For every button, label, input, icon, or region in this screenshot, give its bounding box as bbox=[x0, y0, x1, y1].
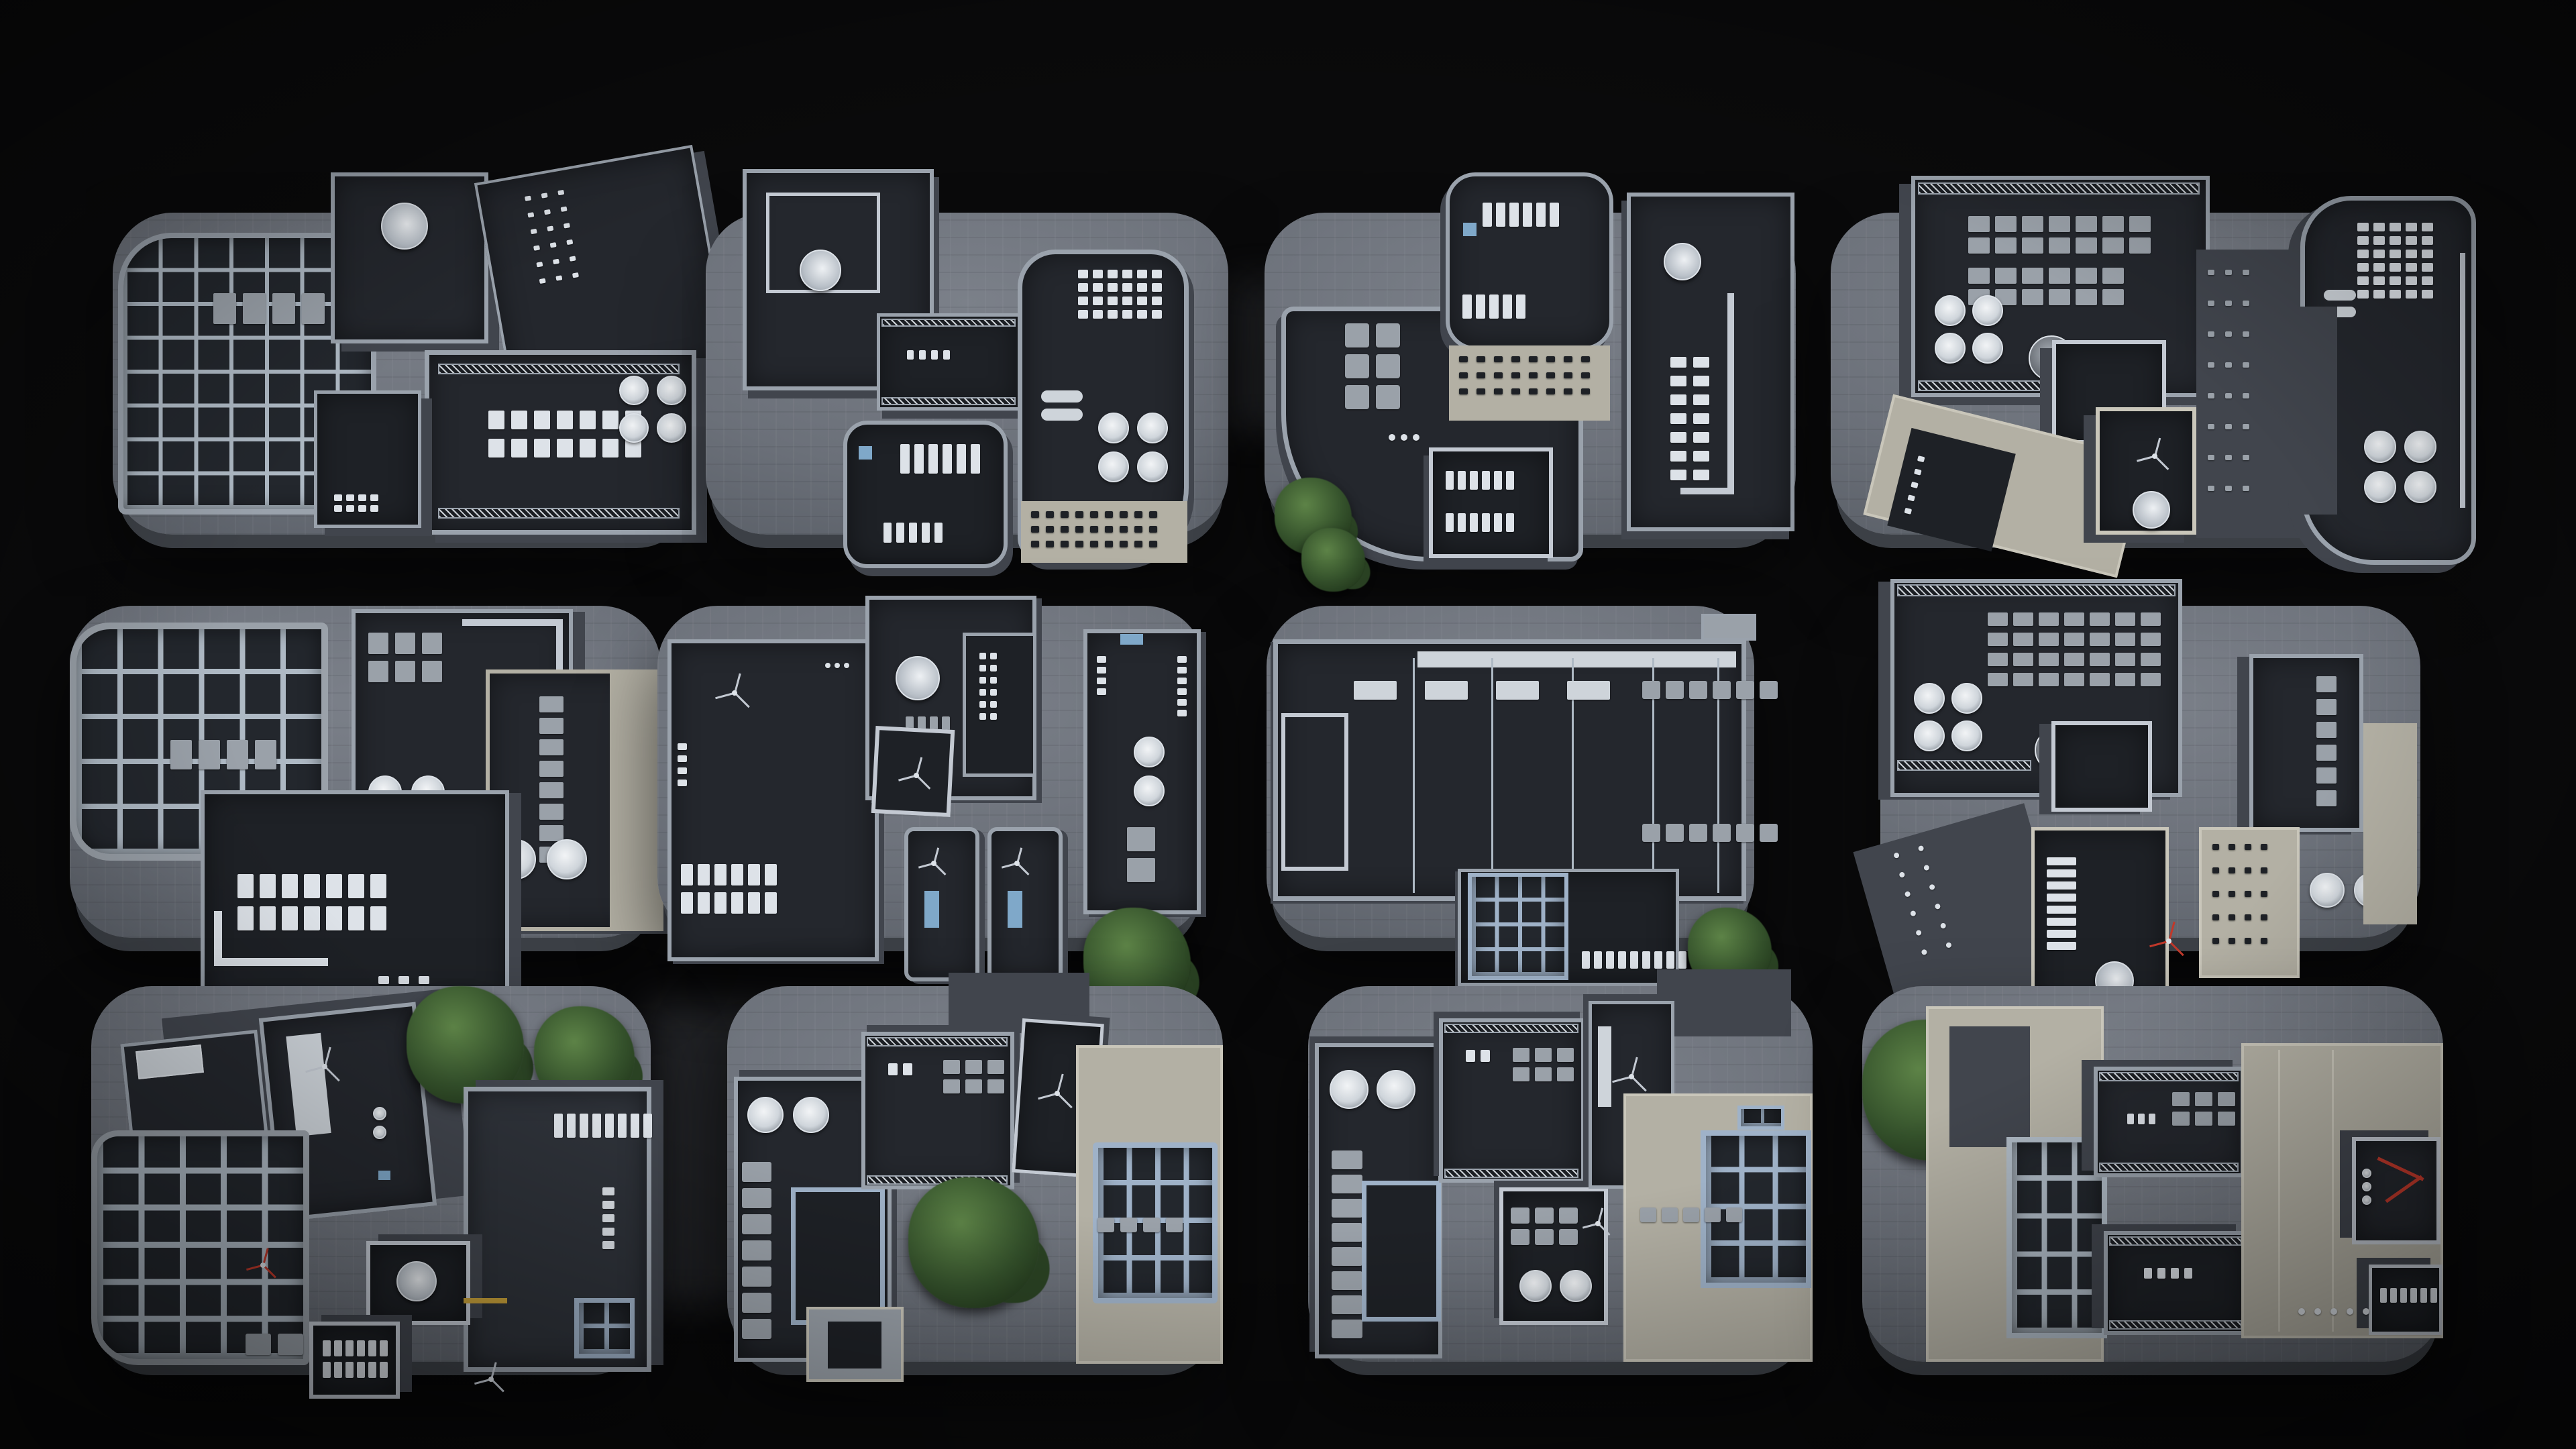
center-south-roof-roof bbox=[2104, 1231, 2248, 1335]
facade-windows-cell bbox=[2261, 891, 2267, 897]
vent-box-grid-cell bbox=[1995, 216, 2017, 232]
vent-row-cell bbox=[1654, 951, 1662, 969]
slab-window-dots-cell bbox=[536, 262, 543, 267]
vent-grid-cell bbox=[323, 1362, 331, 1378]
big-vent-row-cell bbox=[914, 444, 924, 474]
water-tanks-tank bbox=[619, 376, 649, 405]
mid-rounded-hall-roof bbox=[843, 421, 1008, 568]
vent-column-cell bbox=[1097, 667, 1106, 674]
annex-vents-cell bbox=[334, 494, 342, 501]
water-tanks bbox=[1098, 413, 1168, 482]
water-tanks-tank bbox=[1098, 413, 1129, 443]
water-tanks-tank bbox=[2404, 471, 2436, 503]
brick-windows-cell bbox=[2243, 424, 2249, 429]
brick-windows-cell bbox=[2243, 486, 2249, 491]
facade-windows-cell bbox=[1090, 526, 1098, 533]
brick-windows-cell bbox=[2208, 270, 2214, 275]
facade-windows-cell bbox=[1529, 388, 1538, 394]
walkway-vents-cell bbox=[919, 350, 926, 360]
blue-skylight bbox=[1463, 223, 1477, 236]
fan-box-column-cell bbox=[1332, 1295, 1362, 1314]
tower-vent-grid-cell bbox=[2373, 223, 2385, 231]
white-vent-grid-cell bbox=[370, 906, 386, 930]
brick-windows-cell bbox=[2225, 486, 2232, 491]
tower-vent-grid-cell bbox=[2422, 236, 2433, 245]
slab-window-dots-cell bbox=[570, 256, 576, 261]
roof-vent-grid-cell bbox=[602, 439, 619, 458]
roof-bottles-cell bbox=[2127, 1114, 2134, 1124]
facade-windows-cell bbox=[1105, 541, 1113, 547]
lattice-boxes-cell bbox=[246, 1334, 271, 1355]
roof-bits-cell bbox=[903, 1063, 912, 1075]
brick-windows-cell bbox=[2225, 393, 2232, 398]
pill-tank bbox=[1041, 390, 1083, 402]
annex-vents-cell bbox=[979, 677, 986, 684]
tower-vent-grid-cell bbox=[1108, 270, 1118, 278]
east-vent-grid-cell bbox=[1693, 451, 1709, 462]
brick-windows-cell bbox=[2208, 424, 2214, 429]
vent-box-grid-cell bbox=[2090, 633, 2110, 646]
red-turbine-hub bbox=[260, 1263, 266, 1268]
wind-turbine-hub bbox=[488, 1377, 494, 1382]
east-vent-grid-cell bbox=[1670, 394, 1686, 405]
slab-window-dots-cell bbox=[566, 239, 573, 245]
walkway-lattice bbox=[1897, 760, 2031, 771]
tower-vent-grid-cell bbox=[1122, 283, 1132, 292]
tower-vent-grid-cell bbox=[2390, 223, 2401, 231]
vent-boxes bbox=[368, 633, 442, 682]
vent-row bbox=[2380, 1288, 2437, 1303]
vent-slat-row-cell bbox=[592, 1114, 601, 1138]
annex-vents-cell bbox=[990, 713, 997, 720]
fan-box-column-cell bbox=[742, 1162, 771, 1182]
water-tanks bbox=[1330, 1070, 1415, 1109]
vent-grid-cell bbox=[345, 1362, 354, 1378]
facade-windows-cell bbox=[1046, 526, 1054, 533]
block-r3c3 bbox=[1308, 986, 1813, 1362]
small-vent-row-cell bbox=[896, 523, 904, 543]
fan-box-column-cell bbox=[539, 761, 563, 777]
facade-dots-cell bbox=[1898, 871, 1905, 878]
vent-slat-row-cell bbox=[605, 1114, 614, 1138]
tower-vent-grid-cell bbox=[2390, 290, 2401, 299]
vent-box-grid-cell bbox=[2049, 237, 2070, 254]
water-tanks-tank bbox=[1137, 451, 1168, 482]
big-water-tanks-tank bbox=[547, 839, 587, 879]
glass-inset bbox=[1737, 1106, 1784, 1130]
lattice-vents-cell bbox=[1689, 681, 1707, 699]
facade-windows-cell bbox=[2229, 891, 2235, 897]
vent-boxes-cell bbox=[1535, 1067, 1552, 1081]
dot-path-cell bbox=[2330, 1308, 2337, 1315]
east-vent-grid-cell bbox=[1693, 432, 1709, 443]
roof-seam bbox=[2332, 1050, 2334, 1332]
lattice-vent-boxes-cell bbox=[1376, 323, 1400, 347]
lattice-vent-boxes-cell bbox=[1376, 385, 1400, 409]
lattice-vents-cell bbox=[1713, 681, 1731, 699]
roof-dots-cell bbox=[825, 663, 830, 668]
ac-units-cell bbox=[1354, 681, 1397, 700]
big-vent-row-cell bbox=[928, 444, 938, 474]
round-hatches-tank bbox=[1134, 775, 1165, 806]
atrium-vent-boxes-cell bbox=[227, 740, 248, 769]
brick-windows-cell bbox=[2243, 393, 2249, 398]
vent-box-grid-cell bbox=[2064, 612, 2084, 626]
roof-vent-grid-cell bbox=[534, 439, 550, 458]
brick-windows-cell bbox=[2208, 331, 2214, 337]
wind-turbine-hub bbox=[1055, 1091, 1060, 1096]
lattice-vents-cell bbox=[1736, 681, 1754, 699]
east-vent-grid-cell bbox=[1670, 357, 1686, 368]
lattice-boxes-cell bbox=[1640, 1207, 1656, 1222]
inner-annex bbox=[1429, 447, 1553, 558]
water-tanks-tank bbox=[1972, 295, 2003, 326]
walkway-lattice bbox=[867, 1037, 1008, 1046]
facade-dots-cell bbox=[1915, 930, 1922, 936]
vent-box-grid-cell bbox=[1968, 237, 1990, 254]
small-hatches bbox=[2362, 1169, 2371, 1205]
vent-box-grid-cell bbox=[2141, 633, 2161, 646]
atrium-vent-boxes-cell bbox=[170, 740, 192, 769]
ladder-rungs-cell bbox=[678, 743, 687, 750]
facade-windows-cell bbox=[1511, 356, 1520, 362]
dish-house-roof bbox=[331, 172, 488, 343]
block-r2c1 bbox=[70, 606, 661, 938]
vent-slat-row-cell bbox=[567, 1114, 576, 1138]
annex-vents-cell bbox=[1494, 513, 1502, 532]
facade-windows-cell bbox=[2261, 867, 2267, 873]
roof-bits-cell bbox=[398, 976, 409, 984]
facade-windows-cell bbox=[1477, 372, 1485, 378]
brick-windows bbox=[2208, 270, 2249, 491]
roof-dot-column-cell bbox=[1914, 469, 1922, 476]
white-vent-grid-cell bbox=[304, 874, 320, 898]
facade-windows bbox=[2212, 844, 2267, 944]
vent-grid-cell bbox=[368, 1340, 376, 1356]
brick-windows-cell bbox=[2225, 331, 2232, 337]
white-vent-grid-cell bbox=[237, 906, 254, 930]
roof-vent-grid-cell bbox=[511, 439, 527, 458]
vent-grid-cell bbox=[357, 1340, 365, 1356]
vent-row-cell bbox=[2420, 1288, 2427, 1303]
facade-windows-cell bbox=[1031, 511, 1039, 518]
annex-vents-cell bbox=[358, 505, 366, 512]
facade-dots-cell bbox=[1904, 891, 1911, 898]
vent-box-grid-cell bbox=[2141, 673, 2161, 686]
annex-vents-cell bbox=[990, 701, 997, 708]
tower-vent-grid-cell bbox=[1122, 297, 1132, 305]
lattice-vents-cell bbox=[1689, 824, 1707, 842]
louver-column-cell bbox=[2047, 918, 2076, 926]
wind-turbine bbox=[474, 1362, 508, 1397]
rail-roof bbox=[1362, 1181, 1441, 1322]
vent-box-grid-cell bbox=[1968, 268, 1990, 284]
tower-vent-grid-cell bbox=[1093, 283, 1103, 292]
north-center-hall bbox=[861, 1032, 1014, 1189]
white-vent-grid-cell bbox=[282, 874, 298, 898]
roof-vent-grid-cell bbox=[580, 439, 596, 458]
brick-windows-cell bbox=[2225, 455, 2232, 460]
annex-vents-cell bbox=[1458, 513, 1466, 532]
vent-grid bbox=[323, 1340, 388, 1378]
vent-box-grid-cell bbox=[2064, 673, 2084, 686]
north-center-hall-roof bbox=[861, 1032, 1014, 1189]
vent-grid-cell bbox=[345, 1340, 354, 1356]
ladder-rungs-cell bbox=[678, 755, 687, 762]
annex-vents-cell bbox=[990, 665, 997, 672]
lattice-vent-boxes-cell bbox=[1345, 354, 1369, 378]
lattice-boxes-cell bbox=[278, 1334, 303, 1355]
beige-dark-inset bbox=[1949, 1026, 2030, 1147]
tower-vent-grid-cell bbox=[2373, 236, 2385, 245]
vent-column-cell bbox=[1177, 678, 1187, 684]
facade-windows-cell bbox=[2212, 938, 2219, 944]
vent-box-grid-cell bbox=[2022, 289, 2043, 305]
tower-vent-grid-cell bbox=[2390, 250, 2401, 258]
vent-boxes-cell bbox=[2195, 1092, 2212, 1106]
lattice-boxes-cell bbox=[1120, 1218, 1137, 1232]
facade-windows-cell bbox=[2245, 938, 2251, 944]
roof-dot-column-cell bbox=[1911, 482, 1919, 488]
facade-windows-cell bbox=[1090, 541, 1098, 547]
tower-vent-grid-cell bbox=[2373, 290, 2385, 299]
brick-windows-cell bbox=[2225, 362, 2232, 368]
red-turbine bbox=[246, 1248, 280, 1283]
brick-windows-cell bbox=[2243, 362, 2249, 368]
small-vent-row-cell bbox=[883, 523, 892, 543]
brick-windows-cell bbox=[2208, 455, 2214, 460]
brick-windows-cell bbox=[2225, 270, 2232, 275]
louver-column-cell bbox=[2047, 942, 2076, 950]
facade-windows-cell bbox=[2229, 914, 2235, 920]
big-vent-row-cell bbox=[943, 444, 952, 474]
block-r1c1 bbox=[113, 213, 697, 535]
annex-vents-cell bbox=[990, 689, 997, 696]
white-parapet bbox=[214, 911, 222, 966]
fan-box-column bbox=[742, 1162, 771, 1339]
walkway-vents-cell bbox=[907, 350, 914, 360]
tower-vents bbox=[1462, 294, 1525, 319]
round-hatches bbox=[1134, 737, 1165, 806]
vent-boxes-cell bbox=[987, 1079, 1004, 1093]
facade-windows-cell bbox=[1459, 356, 1468, 362]
fan-boxes-cell bbox=[1127, 827, 1155, 851]
facade-windows-cell bbox=[1511, 388, 1520, 394]
water-tanks bbox=[747, 1097, 829, 1133]
facade-dots-cell bbox=[1910, 910, 1917, 917]
walkway-lattice bbox=[881, 397, 1016, 405]
vent-box-column-cell bbox=[2316, 699, 2337, 715]
slab-window-dots-cell bbox=[525, 196, 531, 201]
walkway-hall-roof bbox=[877, 313, 1021, 411]
water-tanks-tank bbox=[1377, 1070, 1415, 1109]
stepped-annex-roof bbox=[2051, 721, 2152, 812]
slab-window-dots-cell bbox=[563, 223, 570, 228]
white-strip bbox=[1598, 1026, 1611, 1107]
east-vent-grid bbox=[1670, 357, 1709, 480]
vent-box-grid-cell bbox=[2090, 653, 2110, 666]
vent-boxes-cell bbox=[2218, 1112, 2235, 1126]
annex-vents-cell bbox=[1446, 513, 1454, 532]
facade-windows-cell bbox=[2212, 914, 2219, 920]
fan-box-column-cell bbox=[742, 1267, 771, 1287]
walkway-lattice bbox=[438, 508, 680, 519]
dot-path-cell bbox=[2363, 1308, 2369, 1315]
walkway-hall bbox=[877, 313, 1021, 411]
water-tanks-tank bbox=[1935, 333, 1966, 364]
beige-facade bbox=[610, 669, 663, 931]
walkway-lattice bbox=[1897, 584, 2176, 596]
vent-box-grid-cell bbox=[2064, 633, 2084, 646]
facade-windows-cell bbox=[1564, 388, 1572, 394]
center-south-roof bbox=[2104, 1231, 2248, 1335]
city-blocks-render bbox=[0, 0, 2576, 1449]
vent-boxes-cell bbox=[987, 1060, 1004, 1074]
tower-vents-cell bbox=[1523, 203, 1532, 227]
tower-vent-grid-cell bbox=[1093, 297, 1103, 305]
annex-steps bbox=[828, 1322, 881, 1368]
satellite-dish bbox=[381, 203, 428, 250]
facade-windows-cell bbox=[1120, 511, 1128, 518]
atrium-vent-boxes-cell bbox=[272, 293, 295, 324]
lattice-boxes bbox=[1640, 1207, 1742, 1222]
wind-turbine bbox=[1611, 1057, 1652, 1097]
vent-box-grid-cell bbox=[2129, 237, 2151, 254]
tower-vent-grid-cell bbox=[1152, 310, 1162, 319]
walkway-lattice bbox=[2099, 1163, 2239, 1172]
wind-turbine-hub bbox=[322, 1064, 327, 1069]
lattice-vents-cell bbox=[1559, 1207, 1578, 1224]
vent-row-cell bbox=[1594, 951, 1602, 969]
vent-column-cell bbox=[1097, 656, 1106, 663]
lattice-vents-cell bbox=[1535, 1229, 1554, 1245]
tower-vent-grid-cell bbox=[2390, 263, 2401, 272]
fan-box-column-cell bbox=[539, 696, 563, 712]
water-tanks-tank bbox=[1951, 720, 1982, 751]
vent-box-grid bbox=[1968, 216, 2151, 254]
white-vent-grid bbox=[237, 874, 386, 930]
vent-grid-cell bbox=[368, 1362, 376, 1378]
tower-vent-grid-cell bbox=[1152, 297, 1162, 305]
inner-annex-roof bbox=[1429, 447, 1553, 558]
atrium-vent-boxes-cell bbox=[302, 293, 325, 324]
annex-vents-cell bbox=[990, 653, 997, 659]
vent-box-grid-cell bbox=[2013, 633, 2033, 646]
facade-windows-cell bbox=[1581, 356, 1590, 362]
wind-turbine bbox=[305, 1046, 345, 1087]
ladder-rungs bbox=[678, 743, 687, 786]
vent-boxes-cell bbox=[943, 1079, 960, 1093]
roof-bits-cell bbox=[2184, 1268, 2192, 1279]
tower-vent-grid-cell bbox=[2422, 250, 2433, 258]
blue-skylight bbox=[378, 1171, 390, 1180]
water-tanks bbox=[1914, 683, 1982, 751]
vent-box-grid-cell bbox=[2115, 673, 2135, 686]
brick-windows-cell bbox=[2208, 486, 2214, 491]
vent-row-cell bbox=[1678, 951, 1686, 969]
roof-bits-cell bbox=[2171, 1268, 2179, 1279]
block-r2c2 bbox=[657, 606, 1205, 938]
brick-facade-strip bbox=[2300, 307, 2337, 515]
water-tanks-tank bbox=[747, 1097, 784, 1133]
tower-vent-grid-cell bbox=[2406, 250, 2417, 258]
roof-dots bbox=[1389, 434, 1419, 441]
tower-vent-grid-cell bbox=[1137, 270, 1147, 278]
white-vent-grid-cell bbox=[731, 864, 743, 885]
vent-slat-row-cell bbox=[631, 1114, 639, 1138]
glass-inset bbox=[574, 1298, 635, 1358]
helipad-dish bbox=[396, 1261, 437, 1301]
tower-vent-grid-cell bbox=[2357, 236, 2369, 245]
facade-windows-cell bbox=[1120, 541, 1128, 547]
ladder-rungs-cell bbox=[678, 780, 687, 786]
red-turbine-hub bbox=[2166, 938, 2171, 944]
dot-path-cell bbox=[2347, 1308, 2353, 1315]
facade-windows-cell bbox=[1511, 372, 1520, 378]
vent-box-grid-cell bbox=[2129, 216, 2151, 232]
water-tanks-tank bbox=[1137, 413, 1168, 443]
tower-vent-grid bbox=[1078, 270, 1162, 319]
lattice-vents-cell bbox=[1666, 681, 1684, 699]
wind-turbine bbox=[898, 757, 935, 794]
wind-turbine-hub bbox=[1014, 861, 1020, 866]
water-tanks-tank bbox=[1330, 1070, 1368, 1109]
block-r3c4 bbox=[1862, 986, 2443, 1362]
facade-windows-cell bbox=[1529, 356, 1538, 362]
walkway-lattice bbox=[1444, 1024, 1578, 1033]
water-tanks-tank bbox=[1914, 683, 1945, 714]
white-vent-grid-cell bbox=[326, 906, 342, 930]
small-vent-row bbox=[883, 523, 943, 543]
vent-box-column-cell bbox=[2316, 790, 2337, 806]
tower-vent-grid-cell bbox=[2406, 223, 2417, 231]
tower-vents-cell bbox=[1509, 203, 1519, 227]
walkway-lattice bbox=[2109, 1320, 2242, 1330]
parapet-pipe bbox=[1680, 488, 1734, 494]
annex-vents-cell bbox=[1470, 471, 1478, 490]
ac-units-cell bbox=[1567, 681, 1610, 700]
ladder-rungs-cell bbox=[602, 1214, 614, 1222]
lattice-boxes-cell bbox=[1166, 1218, 1183, 1232]
wind-turbine bbox=[1582, 1207, 1614, 1240]
northeast-building-roof bbox=[2249, 654, 2363, 832]
tower-vents bbox=[1483, 203, 1559, 227]
small-hatches-tank bbox=[2362, 1169, 2371, 1178]
lattice-vents-cell bbox=[1642, 824, 1660, 842]
louver-column bbox=[2047, 857, 2076, 950]
white-vent-grid-cell bbox=[731, 892, 743, 914]
wind-turbine-hub bbox=[914, 773, 919, 778]
water-tanks-tank bbox=[657, 376, 686, 405]
tower-vent-grid-cell bbox=[2422, 276, 2433, 285]
vent-box-grid-cell bbox=[2049, 268, 2070, 284]
vent-box-grid-cell bbox=[2102, 289, 2124, 305]
lattice-vent-boxes-cell bbox=[1345, 385, 1369, 409]
annex-vents-cell bbox=[346, 494, 354, 501]
atrium-vent-boxes bbox=[170, 740, 276, 769]
parapet-pipe bbox=[1727, 293, 1734, 494]
facade-windows-cell bbox=[1581, 388, 1590, 394]
roof-vent-grid-cell bbox=[557, 439, 573, 458]
pill-tank bbox=[2324, 290, 2356, 301]
roof-bottles bbox=[2127, 1114, 2155, 1124]
yellow-pipe bbox=[464, 1298, 507, 1303]
white-vent-grid-cell bbox=[698, 892, 710, 914]
facade-windows-cell bbox=[1105, 526, 1113, 533]
vent-box-grid-cell bbox=[2102, 268, 2124, 284]
annex-vents-cell bbox=[979, 665, 986, 672]
facade-windows-cell bbox=[1031, 541, 1039, 547]
